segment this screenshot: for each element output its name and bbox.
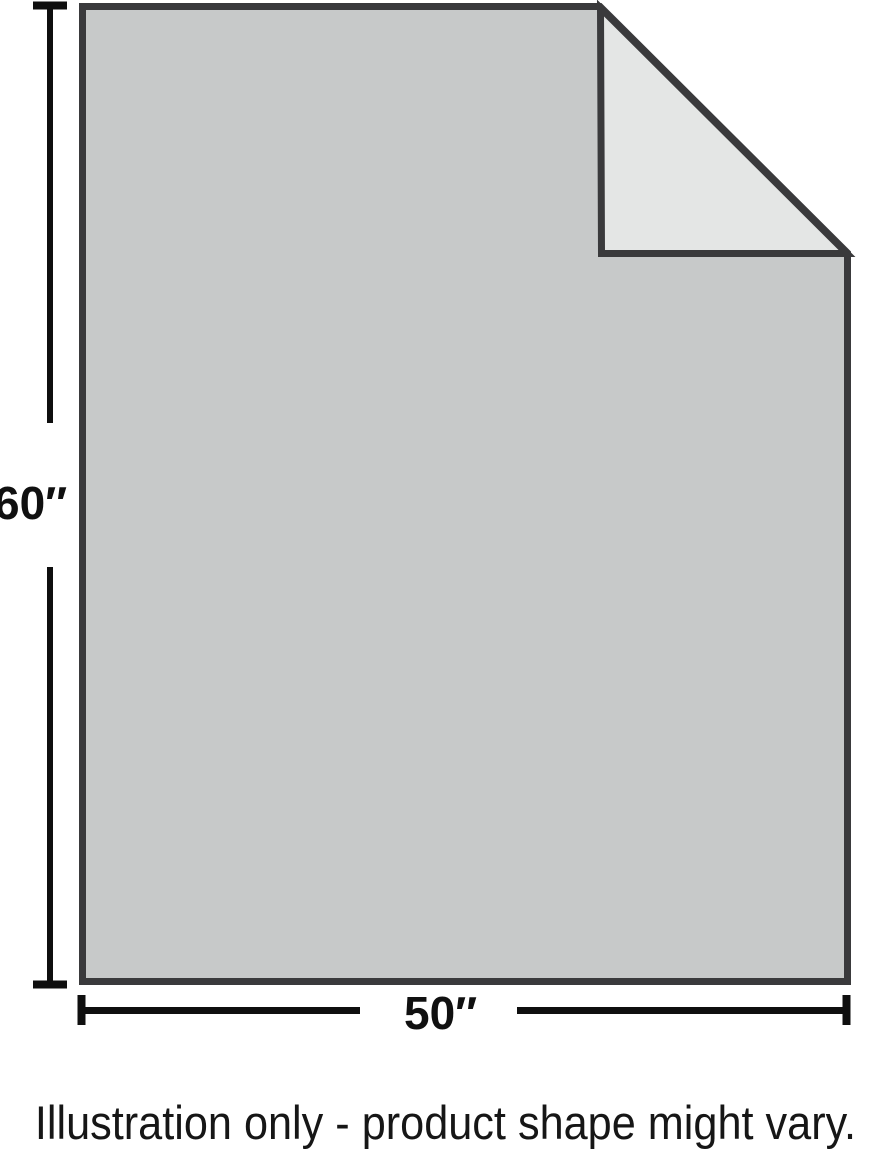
disclaimer-caption: Illustration only - product shape might … <box>35 1099 837 1146</box>
diagram-canvas <box>0 0 872 1151</box>
width-dimension-label: 50″ <box>404 990 477 1036</box>
product-dimension-illustration: 60″ 50″ Illustration only - product shap… <box>0 0 872 1151</box>
height-dimension-label: 60″ <box>0 480 67 526</box>
folded-corner-flap <box>601 8 848 254</box>
